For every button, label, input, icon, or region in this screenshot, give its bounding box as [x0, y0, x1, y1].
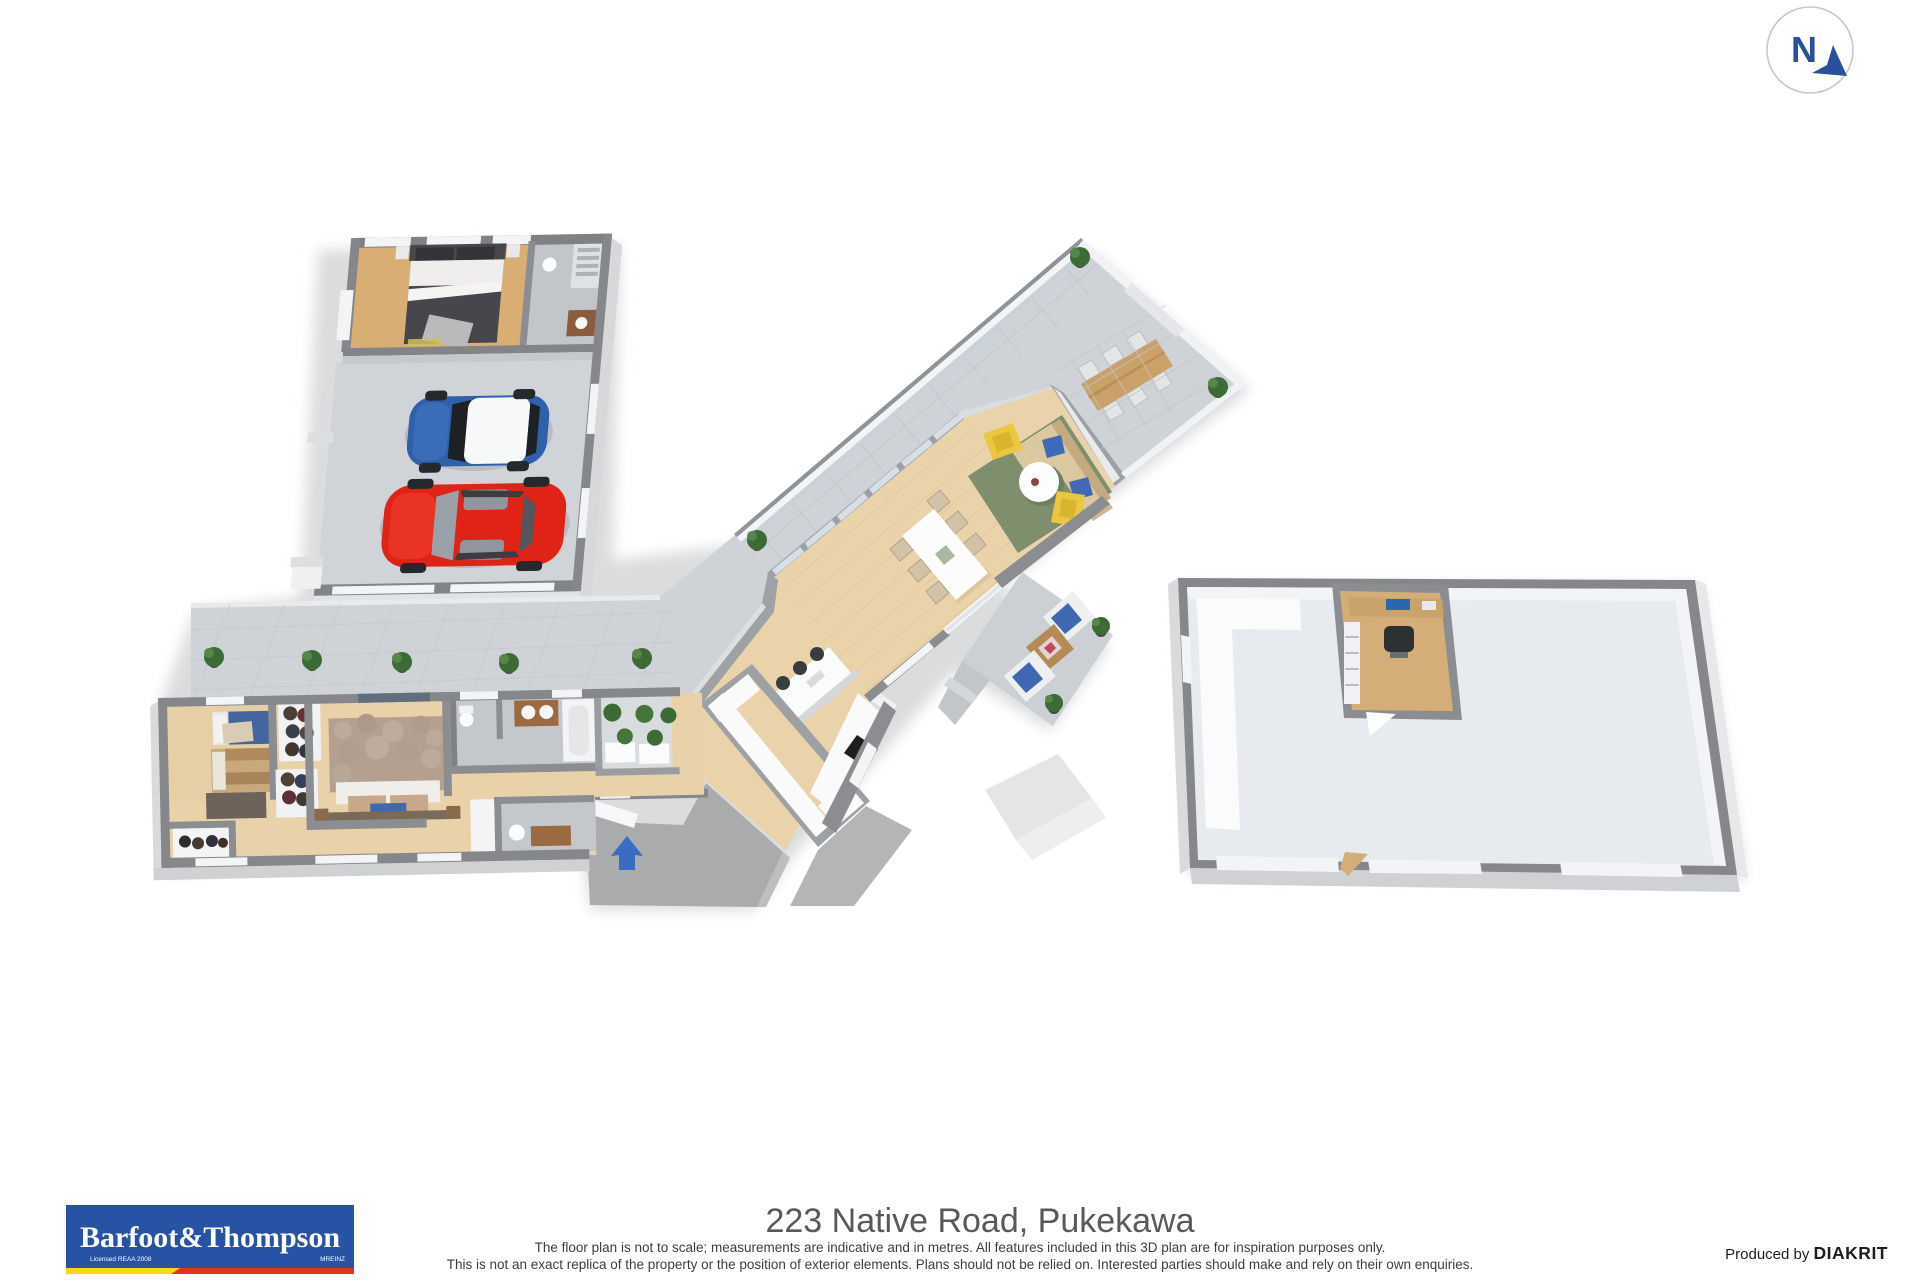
- svg-text:N: N: [1791, 29, 1817, 70]
